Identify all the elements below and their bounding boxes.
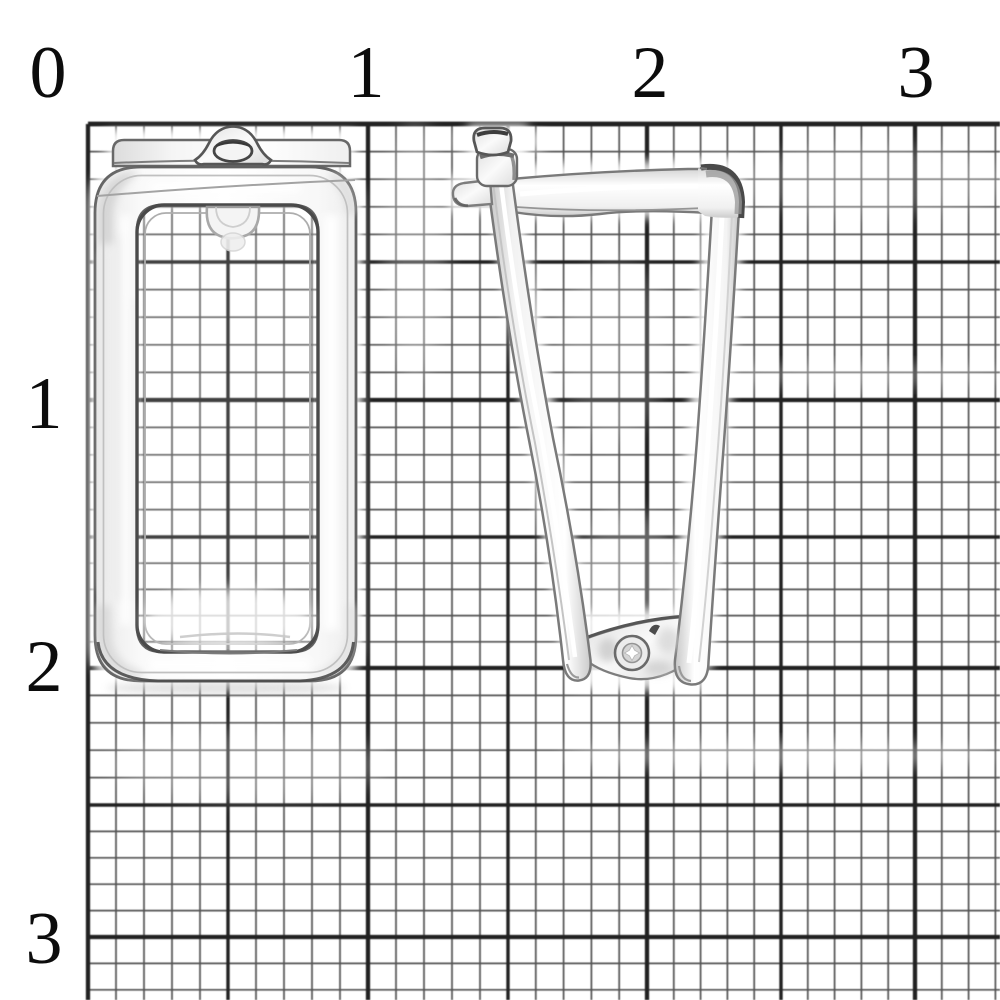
svg-text:2: 2 — [632, 32, 669, 114]
svg-text:1: 1 — [26, 363, 63, 445]
svg-text:3: 3 — [898, 32, 935, 114]
svg-text:0: 0 — [30, 32, 67, 114]
svg-text:2: 2 — [26, 626, 63, 708]
svg-text:1: 1 — [348, 32, 385, 114]
svg-text:3: 3 — [26, 898, 63, 980]
